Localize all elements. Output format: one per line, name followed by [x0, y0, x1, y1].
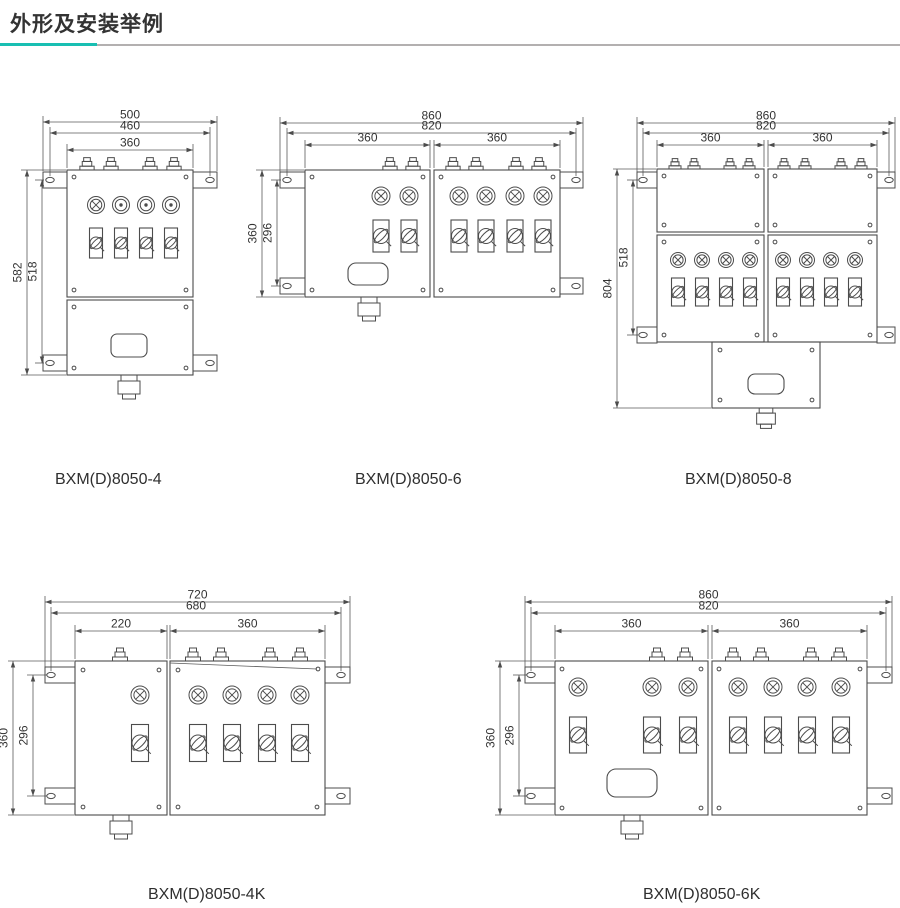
dim-arrow: [631, 329, 635, 336]
rotary-switch: [776, 278, 791, 306]
screw-hole: [551, 288, 555, 292]
dimension-horizontal: 820: [531, 599, 886, 616]
dim-label: 820: [698, 599, 718, 613]
dim-label: 296: [17, 725, 31, 745]
bracket-slot: [882, 672, 890, 677]
dim-arrow: [424, 143, 431, 147]
screw-hole: [72, 366, 76, 370]
dim-label: 360: [487, 131, 507, 145]
dim-arrow: [344, 600, 351, 604]
dim-arrow: [275, 180, 279, 187]
bracket-slot: [572, 177, 580, 182]
dim-label: 820: [756, 119, 776, 133]
drawing-caption: BXM(D)8050-4: [55, 471, 162, 488]
dim-arrow: [498, 661, 502, 668]
screw-hole: [755, 333, 759, 337]
dim-arrow: [67, 148, 74, 152]
enclosure-panel: [305, 170, 430, 297]
dim-label: 582: [11, 262, 25, 282]
screw-hole: [718, 348, 722, 352]
dim-arrow: [889, 121, 896, 125]
rotary-switch: [729, 717, 749, 753]
drawing-bxmd8050-6k: 860820360360360296BXM(D)8050-6K: [484, 588, 893, 904]
dim-arrow: [768, 143, 775, 147]
dim-arrow: [40, 180, 44, 187]
dim-arrow: [51, 611, 58, 615]
cable-entry: [754, 648, 769, 661]
indicator-light: [776, 253, 791, 268]
dim-arrow: [260, 170, 264, 177]
light-dot: [169, 203, 172, 206]
screw-hole: [315, 805, 319, 809]
dim-arrow: [45, 600, 52, 604]
screw-hole: [755, 240, 759, 244]
indicator-light: [719, 253, 734, 268]
dimension-horizontal: 680: [51, 599, 341, 616]
screw-hole: [176, 668, 180, 672]
cable-entry: [726, 648, 741, 661]
indicator-light: [679, 678, 697, 696]
dim-arrow: [335, 611, 342, 615]
dim-arrow: [161, 629, 168, 633]
dim-label: 360: [621, 617, 641, 631]
mounting-bracket: [45, 667, 75, 683]
dim-arrow: [43, 120, 50, 124]
dim-arrow: [615, 402, 619, 409]
dim-arrow: [319, 629, 326, 633]
mounting-bracket: [280, 172, 305, 188]
enclosure-panel: [768, 169, 877, 232]
dim-arrow: [712, 629, 719, 633]
mounting-bracket: [280, 278, 305, 294]
dim-label: 518: [617, 247, 631, 267]
bracket-slot: [283, 177, 291, 182]
indicator-light: [800, 253, 815, 268]
dimension-vertical: 296: [261, 180, 280, 286]
screw-hole: [184, 288, 188, 292]
dim-arrow: [861, 629, 868, 633]
dim-arrow: [637, 121, 644, 125]
drawing-bxmd8050-4: 500460360582518BXM(D)8050-4: [11, 108, 218, 489]
dim-arrow: [758, 143, 765, 147]
cable-entry: [406, 158, 420, 170]
dim-arrow: [25, 369, 29, 376]
dim-label: 296: [261, 223, 275, 243]
bracket-slot: [206, 360, 214, 365]
cable-entry: [214, 648, 229, 661]
drawing-caption: BXM(D)8050-6: [355, 471, 462, 488]
indicator-light: [258, 686, 276, 704]
mounting-bracket: [325, 667, 350, 683]
screw-hole: [421, 175, 425, 179]
screw-hole: [560, 667, 564, 671]
screw-hole: [717, 667, 721, 671]
dim-arrow: [11, 661, 15, 668]
cable-entry: [650, 648, 665, 661]
dimension-vertical: 518: [617, 180, 636, 335]
dim-arrow: [555, 629, 562, 633]
dim-arrow: [11, 809, 15, 816]
dim-label: 360: [812, 131, 832, 145]
bracket-slot: [46, 177, 54, 182]
rotary-switch: [114, 228, 129, 258]
indicator-light: [695, 253, 710, 268]
enclosure-panel: [75, 661, 167, 815]
nameplate: [607, 769, 657, 797]
screw-hole: [662, 223, 666, 227]
dim-label: 804: [601, 278, 615, 298]
indicator-light: [88, 197, 105, 214]
rotary-switch: [89, 228, 104, 258]
dim-arrow: [75, 629, 82, 633]
dim-label: 360: [0, 728, 11, 748]
indicator-light: [671, 253, 686, 268]
rotary-switch: [824, 278, 839, 306]
nameplate: [348, 263, 388, 285]
dim-arrow: [280, 121, 287, 125]
bracket-slot: [527, 672, 535, 677]
dim-arrow: [615, 169, 619, 176]
dimension-horizontal: 820: [643, 119, 889, 136]
screw-hole: [439, 175, 443, 179]
dim-arrow: [631, 180, 635, 187]
enclosure-panel: [67, 300, 193, 375]
rotary-switch: [569, 717, 589, 753]
cable-entry: [669, 159, 681, 169]
cable-gland: [118, 375, 140, 399]
cable-entry: [80, 158, 94, 170]
dimension-horizontal: 820: [287, 119, 576, 136]
dim-arrow: [517, 675, 521, 682]
dim-label: 360: [779, 617, 799, 631]
dimension-horizontal: 360: [712, 617, 867, 634]
mounting-bracket: [45, 788, 75, 804]
bracket-slot: [882, 793, 890, 798]
dimension-vertical: 360: [484, 661, 503, 815]
dim-arrow: [643, 131, 650, 135]
screw-hole: [81, 668, 85, 672]
screw-hole: [421, 288, 425, 292]
rotary-switch: [164, 228, 179, 258]
dim-arrow: [204, 131, 211, 135]
drawing-bxmd8050-8: 860820360360804518BXM(D)8050-8: [601, 109, 896, 489]
dim-label: 360: [700, 131, 720, 145]
indicator-light: [163, 197, 180, 214]
drawing-bxmd8050-6: 860820360360360296BXM(D)8050-6: [246, 109, 584, 489]
rotary-switch: [743, 278, 758, 306]
dim-arrow: [170, 629, 177, 633]
dim-label: 820: [421, 119, 441, 133]
dim-arrow: [211, 120, 218, 124]
indicator-light: [477, 187, 495, 205]
screw-hole: [72, 175, 76, 179]
enclosure-panel: [657, 169, 764, 232]
rotary-switch: [643, 717, 663, 753]
rotary-switch: [401, 220, 420, 252]
screw-hole: [551, 175, 555, 179]
cable-entry: [104, 158, 118, 170]
cable-entry: [688, 159, 700, 169]
rotary-switch: [832, 717, 852, 753]
indicator-light: [824, 253, 839, 268]
dim-arrow: [517, 790, 521, 797]
bracket-slot: [639, 177, 647, 182]
screw-hole: [810, 398, 814, 402]
screw-hole: [310, 175, 314, 179]
enclosure-panel: [67, 170, 193, 297]
dim-arrow: [187, 148, 194, 152]
dim-label: 680: [186, 599, 206, 613]
indicator-light: [400, 187, 418, 205]
cable-entry: [532, 158, 546, 170]
bracket-slot: [639, 332, 647, 337]
panel-edge-line: [170, 663, 317, 669]
cable-gland: [110, 815, 132, 839]
cable-entry: [832, 648, 847, 661]
dim-arrow: [531, 611, 538, 615]
screw-hole: [81, 805, 85, 809]
drawing-caption: BXM(D)8050-4K: [148, 886, 266, 903]
bracket-slot: [337, 672, 345, 677]
dimension-vertical: 360: [0, 661, 15, 815]
dim-label: 360: [237, 617, 257, 631]
indicator-light: [450, 187, 468, 205]
screw-hole: [810, 348, 814, 352]
rotary-switch: [679, 717, 699, 753]
screw-hole: [868, 174, 872, 178]
dim-arrow: [287, 131, 294, 135]
dim-arrow: [434, 143, 441, 147]
dimension-vertical: 296: [17, 675, 36, 796]
screw-hole: [699, 806, 703, 810]
rotary-switch: [131, 725, 151, 762]
dim-arrow: [886, 600, 893, 604]
mounting-bracket: [867, 667, 892, 683]
mounting-bracket: [325, 788, 350, 804]
dim-arrow: [570, 131, 577, 135]
rotary-switch: [671, 278, 686, 306]
indicator-light: [764, 678, 782, 696]
dimension-vertical: 296: [503, 675, 522, 796]
screw-hole: [184, 305, 188, 309]
screw-hole: [72, 288, 76, 292]
cable-entry: [778, 159, 790, 169]
bracket-slot: [47, 672, 55, 677]
indicator-light: [372, 187, 390, 205]
screw-hole: [755, 223, 759, 227]
light-dot: [144, 203, 147, 206]
cable-entry: [469, 158, 483, 170]
page: 外形及安装举例 500460360582518BXM(D)8050-486082…: [0, 0, 900, 908]
indicator-light: [131, 686, 149, 704]
indicator-light: [291, 686, 309, 704]
dimension-horizontal: 360: [555, 617, 708, 634]
rotary-switch: [223, 725, 243, 762]
dim-label: 360: [246, 223, 260, 243]
mounting-bracket: [525, 788, 555, 804]
drawing-caption: BXM(D)8050-6K: [643, 886, 761, 903]
dim-arrow: [498, 809, 502, 816]
screw-hole: [773, 333, 777, 337]
rotary-switch: [139, 228, 154, 258]
indicator-light: [848, 253, 863, 268]
dim-arrow: [40, 357, 44, 364]
enclosure-panel: [712, 342, 820, 408]
indicator-light: [534, 187, 552, 205]
cable-entry: [263, 648, 278, 661]
screw-hole: [868, 240, 872, 244]
screw-hole: [157, 805, 161, 809]
cable-entry: [293, 648, 308, 661]
screw-hole: [560, 806, 564, 810]
cable-entry: [799, 159, 811, 169]
rotary-switch: [848, 278, 863, 306]
bracket-slot: [572, 283, 580, 288]
screw-hole: [157, 668, 161, 672]
nameplate: [748, 374, 784, 394]
indicator-light: [743, 253, 758, 268]
screw-hole: [773, 174, 777, 178]
bracket-slot: [337, 793, 345, 798]
dim-arrow: [702, 629, 709, 633]
dim-arrow: [554, 143, 561, 147]
mounting-bracket: [43, 172, 67, 188]
dim-arrow: [577, 121, 584, 125]
drawing-bxmd8050-4k: 720680220360360296BXM(D)8050-4K: [0, 588, 350, 904]
bracket-slot: [885, 332, 893, 337]
indicator-light: [729, 678, 747, 696]
cable-entry: [186, 648, 201, 661]
rotary-switch: [258, 725, 278, 762]
cable-entry: [724, 159, 736, 169]
cable-entry: [167, 158, 181, 170]
mounting-bracket: [193, 172, 217, 188]
indicator-light: [113, 197, 130, 214]
screw-hole: [699, 667, 703, 671]
bracket-slot: [527, 793, 535, 798]
cable-gland: [757, 408, 776, 428]
cable-entry: [446, 158, 460, 170]
mounting-bracket: [525, 667, 555, 683]
screw-hole: [184, 366, 188, 370]
dim-arrow: [657, 143, 664, 147]
rotary-switch: [798, 717, 818, 753]
dim-arrow: [31, 675, 35, 682]
indicator-light: [138, 197, 155, 214]
indicator-light: [832, 678, 850, 696]
dim-label: 360: [357, 131, 377, 145]
technical-drawings-canvas: 500460360582518BXM(D)8050-48608203603603…: [0, 0, 900, 908]
drawing-caption: BXM(D)8050-8: [685, 471, 792, 488]
rotary-switch: [373, 220, 392, 252]
screw-hole: [184, 175, 188, 179]
screw-hole: [72, 305, 76, 309]
mounting-bracket: [193, 355, 217, 371]
indicator-light: [569, 678, 587, 696]
cable-entry: [113, 648, 128, 661]
screw-hole: [662, 240, 666, 244]
cable-entry: [804, 648, 819, 661]
dim-label: 360: [484, 728, 498, 748]
mounting-bracket: [867, 788, 892, 804]
dim-label: 296: [503, 725, 517, 745]
mounting-bracket: [877, 172, 895, 188]
screw-hole: [662, 174, 666, 178]
cable-entry: [743, 159, 755, 169]
bracket-slot: [283, 283, 291, 288]
rotary-switch: [535, 220, 554, 252]
cable-entry: [383, 158, 397, 170]
cable-gland: [358, 297, 380, 321]
screw-hole: [868, 333, 872, 337]
bracket-slot: [46, 360, 54, 365]
cable-entry: [835, 159, 847, 169]
dim-arrow: [880, 611, 887, 615]
light-dot: [119, 203, 122, 206]
dim-arrow: [883, 131, 890, 135]
rotary-switch: [719, 278, 734, 306]
cable-entry: [143, 158, 157, 170]
dim-label: 220: [111, 617, 131, 631]
screw-hole: [717, 806, 721, 810]
dimension-horizontal: 460: [50, 119, 210, 136]
cable-entry: [509, 158, 523, 170]
screw-hole: [858, 806, 862, 810]
indicator-light: [506, 187, 524, 205]
indicator-light: [643, 678, 661, 696]
dim-arrow: [25, 170, 29, 177]
dimension-vertical: 518: [26, 180, 45, 363]
bracket-slot: [885, 177, 893, 182]
indicator-light: [798, 678, 816, 696]
bracket-slot: [47, 793, 55, 798]
dim-arrow: [31, 790, 35, 797]
mounting-bracket: [877, 327, 895, 343]
dim-arrow: [305, 143, 312, 147]
dim-label: 518: [26, 261, 40, 281]
dim-label: 360: [120, 136, 140, 150]
bracket-slot: [206, 177, 214, 182]
screw-hole: [755, 174, 759, 178]
dim-arrow: [871, 143, 878, 147]
screw-hole: [439, 288, 443, 292]
rotary-switch: [189, 725, 209, 762]
rotary-switch: [695, 278, 710, 306]
screw-hole: [858, 667, 862, 671]
screw-hole: [773, 240, 777, 244]
dimension-horizontal: 220: [75, 617, 167, 634]
screw-hole: [773, 223, 777, 227]
dimension-horizontal: 360: [67, 136, 193, 153]
screw-hole: [176, 805, 180, 809]
dim-arrow: [525, 600, 532, 604]
dimension-vertical: 804: [601, 169, 620, 408]
screw-hole: [310, 288, 314, 292]
rotary-switch: [478, 220, 497, 252]
screw-hole: [662, 333, 666, 337]
rotary-switch: [451, 220, 470, 252]
dim-arrow: [275, 280, 279, 287]
mounting-bracket: [43, 355, 67, 371]
cable-entry: [855, 159, 867, 169]
dim-arrow: [260, 291, 264, 298]
dim-label: 460: [120, 119, 140, 133]
cable-gland: [621, 815, 643, 839]
rotary-switch: [291, 725, 311, 762]
rotary-switch: [507, 220, 526, 252]
rotary-switch: [764, 717, 784, 753]
indicator-light: [189, 686, 207, 704]
